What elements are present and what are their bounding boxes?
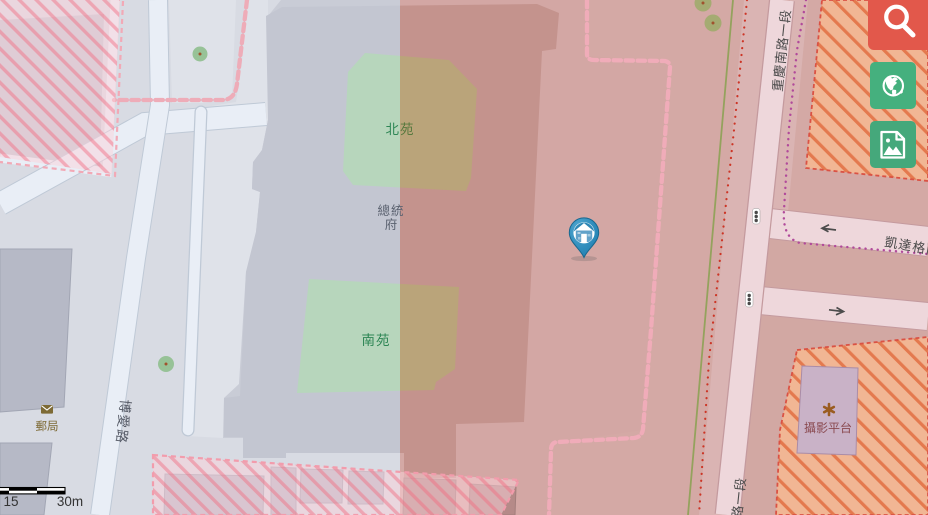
svg-text:15: 15 — [3, 494, 18, 509]
svg-text:30m: 30m — [57, 494, 83, 509]
